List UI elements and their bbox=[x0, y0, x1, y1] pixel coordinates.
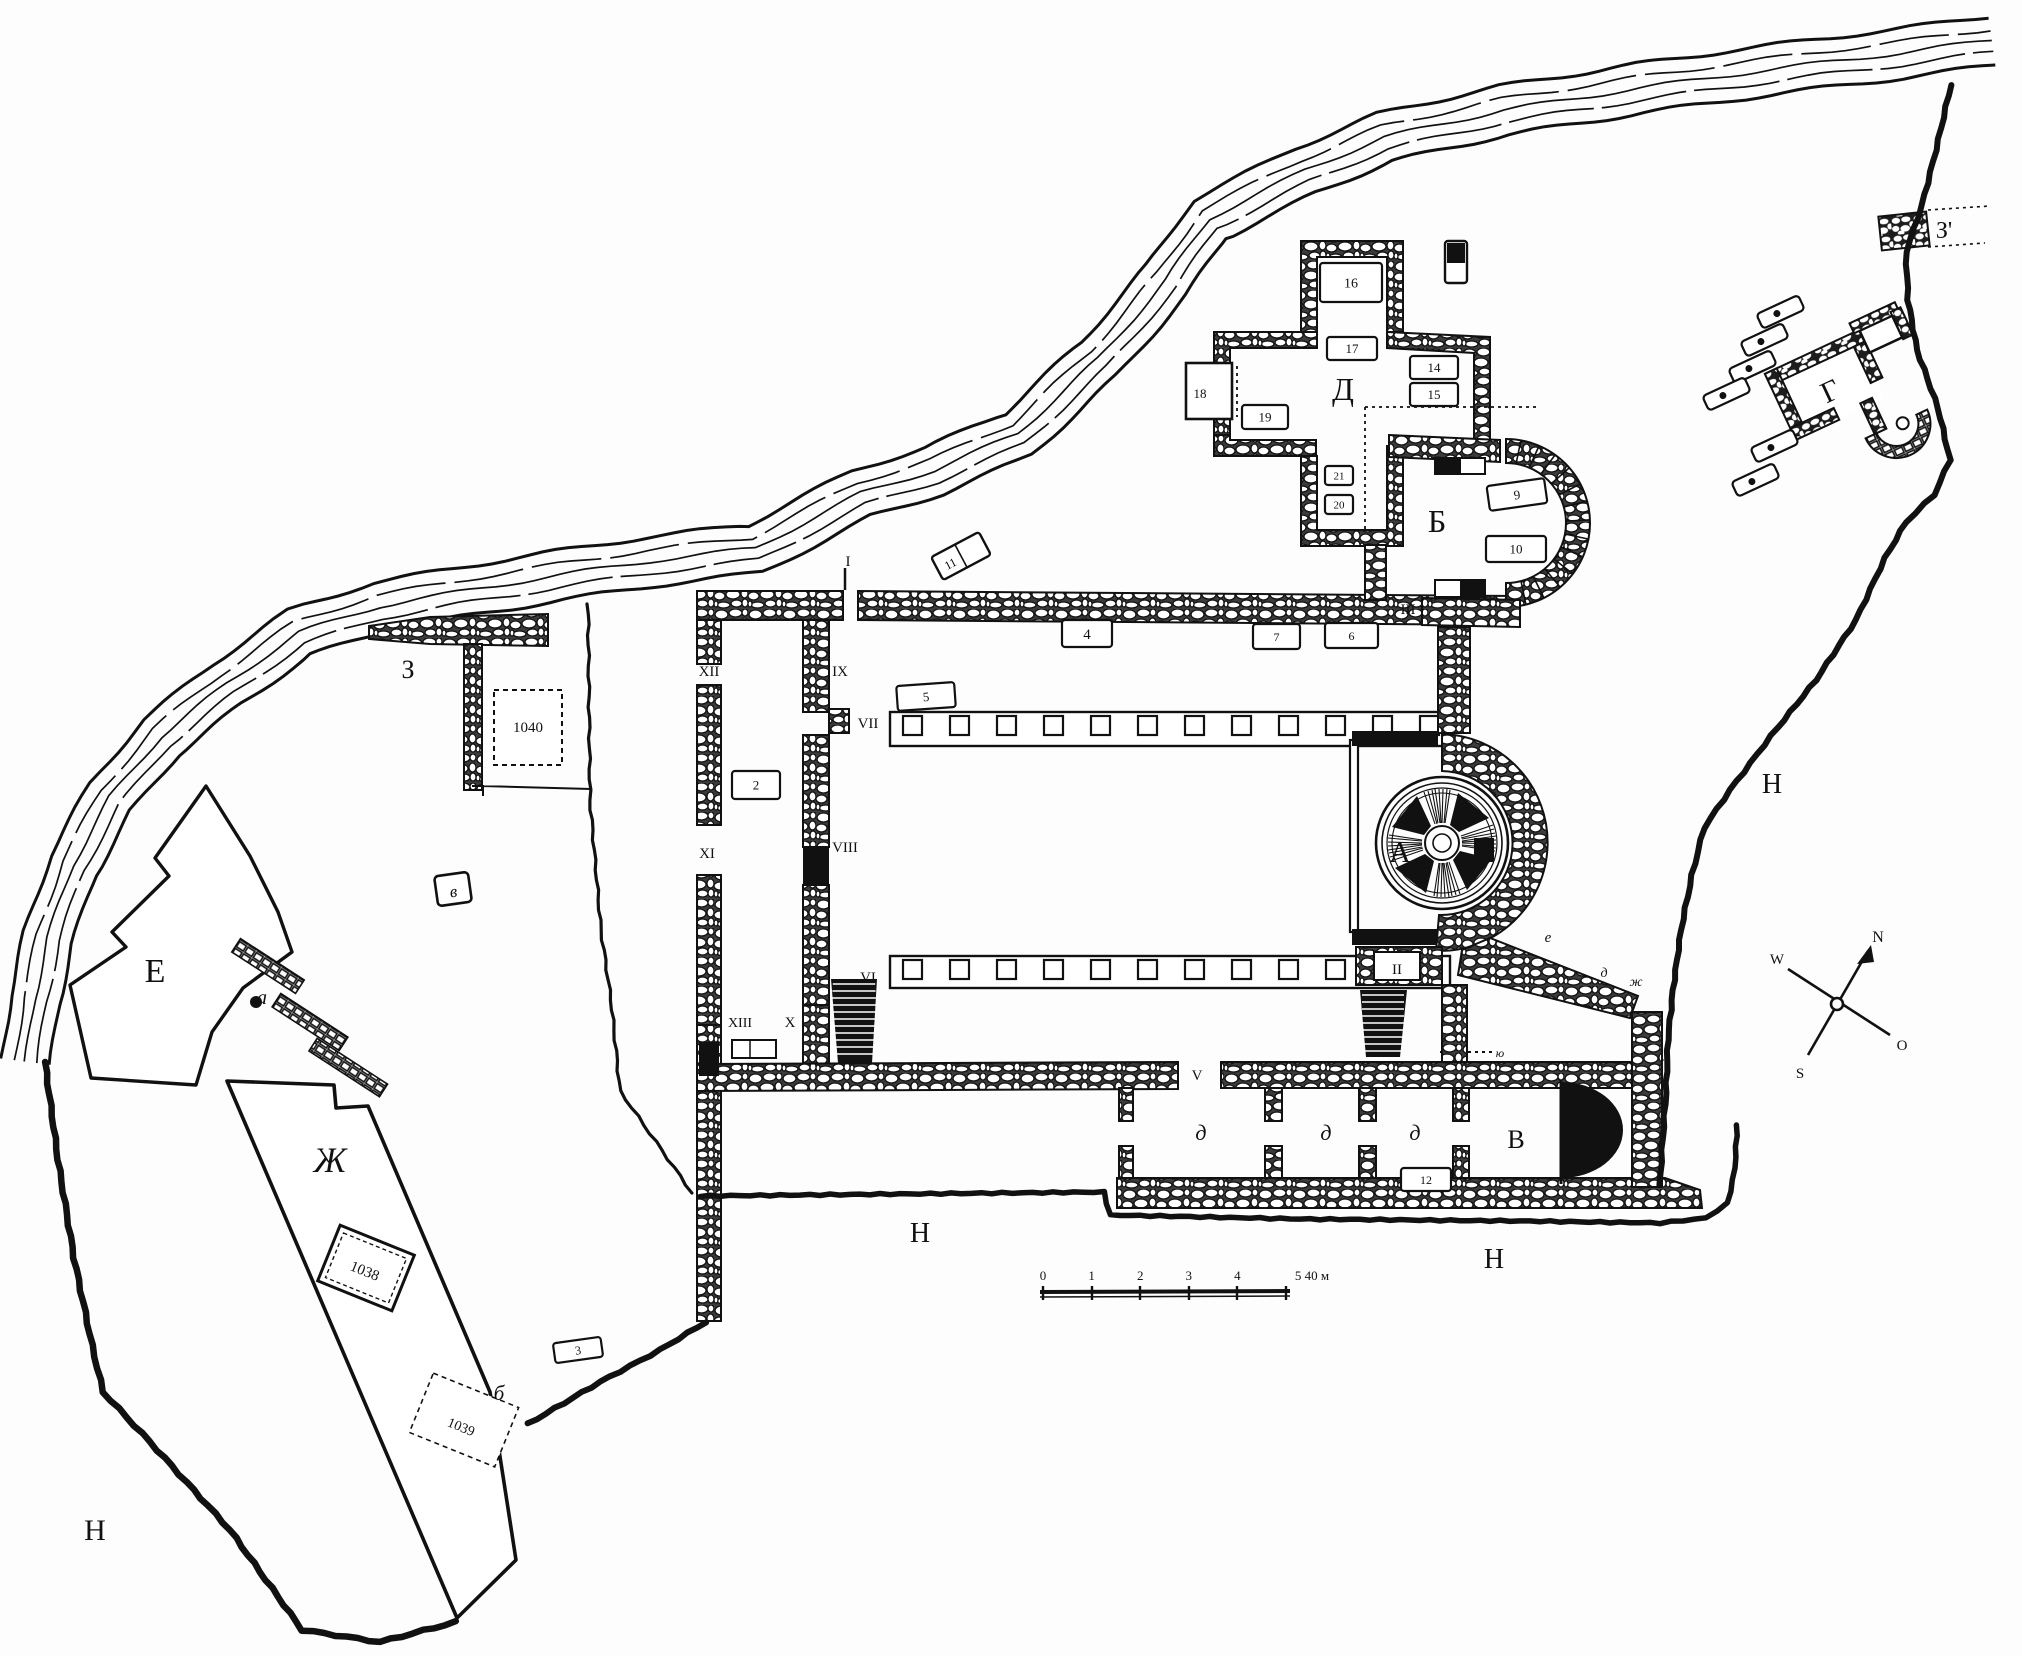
svg-text:XIII: XIII bbox=[728, 1016, 752, 1031]
svg-text:Ж: Ж bbox=[313, 1140, 349, 1180]
svg-text:16: 16 bbox=[1344, 277, 1358, 292]
svg-text:V: V bbox=[1192, 1068, 1203, 1084]
svg-text:3: 3 bbox=[1186, 1268, 1193, 1283]
svg-text:III: III bbox=[1401, 602, 1416, 618]
svg-text:ю: ю bbox=[1496, 1046, 1505, 1060]
svg-text:А: А bbox=[1389, 836, 1411, 869]
svg-text:7: 7 bbox=[1274, 630, 1280, 644]
svg-text:N: N bbox=[1872, 929, 1884, 946]
svg-text:2: 2 bbox=[753, 778, 760, 793]
svg-text:X: X bbox=[785, 1015, 796, 1031]
svg-text:II: II bbox=[1392, 962, 1402, 978]
svg-text:10: 10 bbox=[1510, 542, 1523, 557]
svg-text:д: д bbox=[1195, 1120, 1206, 1145]
svg-text:З': З' bbox=[1936, 218, 1952, 244]
svg-text:0: 0 bbox=[1040, 1268, 1047, 1283]
svg-text:З: З bbox=[401, 655, 414, 684]
svg-text:5 40 м: 5 40 м bbox=[1295, 1268, 1329, 1283]
svg-text:4: 4 bbox=[1083, 627, 1091, 643]
svg-text:Д: Д bbox=[1332, 371, 1354, 407]
svg-text:2: 2 bbox=[1137, 1268, 1144, 1283]
svg-text:12: 12 bbox=[1420, 1173, 1432, 1187]
svg-text:XI: XI bbox=[699, 846, 715, 862]
svg-text:ж: ж bbox=[1629, 975, 1642, 990]
svg-text:4: 4 bbox=[1234, 1268, 1241, 1283]
svg-text:В: В bbox=[1507, 1125, 1524, 1154]
svg-text:Н: Н bbox=[1762, 769, 1782, 800]
svg-text:14: 14 bbox=[1428, 360, 1442, 375]
svg-text:1: 1 bbox=[1088, 1268, 1095, 1283]
svg-text:17: 17 bbox=[1346, 341, 1360, 356]
svg-text:S: S bbox=[1796, 1066, 1804, 1082]
svg-text:е: е bbox=[1545, 930, 1552, 946]
svg-text:Е: Е bbox=[145, 953, 166, 990]
svg-text:Н: Н bbox=[1484, 1244, 1504, 1275]
svg-text:O: O bbox=[1897, 1038, 1908, 1054]
svg-text:б: б bbox=[494, 1381, 506, 1405]
svg-text:XII: XII bbox=[699, 664, 720, 680]
svg-text:1040: 1040 bbox=[513, 720, 543, 736]
svg-text:15: 15 bbox=[1428, 387, 1441, 402]
svg-text:18: 18 bbox=[1194, 386, 1207, 401]
svg-text:VIII: VIII bbox=[832, 840, 858, 856]
svg-text:Н: Н bbox=[910, 1218, 930, 1249]
svg-text:I: I bbox=[846, 554, 851, 570]
svg-text:20: 20 bbox=[1334, 499, 1346, 511]
svg-text:Б: Б bbox=[1428, 503, 1446, 539]
svg-text:д: д bbox=[1320, 1120, 1331, 1145]
svg-text:Н: Н bbox=[84, 1514, 106, 1547]
svg-text:д: д bbox=[1600, 966, 1607, 981]
svg-text:IX: IX bbox=[832, 664, 848, 680]
svg-text:21: 21 bbox=[1334, 470, 1345, 482]
svg-text:W: W bbox=[1770, 952, 1785, 968]
svg-text:5: 5 bbox=[922, 689, 930, 704]
svg-text:19: 19 bbox=[1259, 410, 1272, 425]
svg-text:VII: VII bbox=[858, 716, 879, 732]
svg-text:д: д bbox=[1409, 1120, 1420, 1145]
svg-text:6: 6 bbox=[1349, 629, 1355, 643]
